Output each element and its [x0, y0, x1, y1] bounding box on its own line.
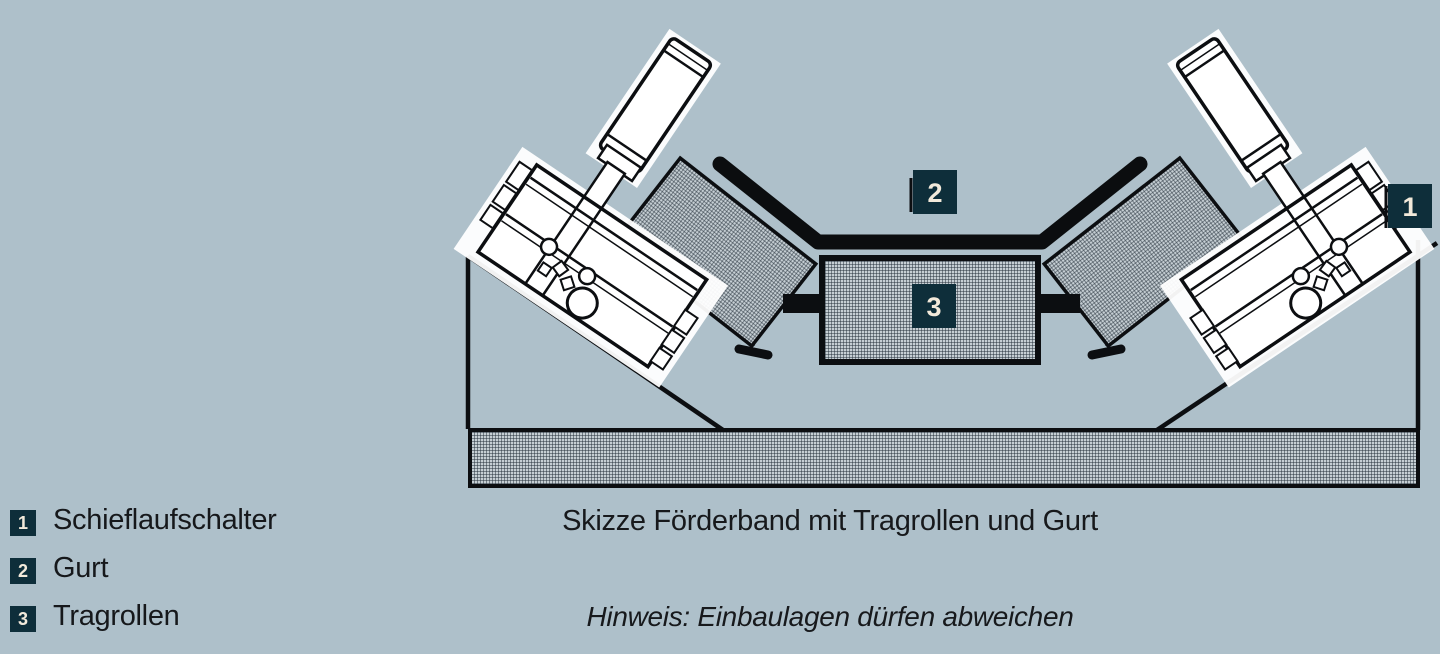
legend-badge-2: 2 [10, 558, 36, 584]
badge-idlers: 3 [912, 284, 956, 328]
badge-switch-number: 1 [1402, 192, 1417, 222]
legend-item-gurt: 2 Gurt [10, 557, 277, 584]
badge-belt-number: 2 [927, 178, 942, 208]
page: 2 3 1 1 Schieflaufschalter 2 Gurt 3 Trag… [0, 0, 1440, 654]
legend-badge-3: 3 [10, 606, 36, 632]
legend-label-1: Schieflaufschalter [53, 504, 277, 537]
axle-stub-right [1037, 294, 1080, 313]
axle-stub-left [783, 294, 825, 313]
legend-label-3: Tragrollen [53, 600, 179, 633]
legend-item-schieflaufschalter: 1 Schieflaufschalter [10, 509, 277, 536]
frame-base-bar [470, 430, 1418, 486]
legend-badge-1: 1 [10, 510, 36, 536]
badge-switch: 1 [1386, 184, 1432, 228]
badge-belt: 2 [911, 170, 957, 214]
legend: 1 Schieflaufschalter 2 Gurt 3 Tragrollen [10, 509, 277, 632]
legend-item-tragrollen: 3 Tragrollen [10, 605, 277, 632]
badge-idlers-number: 3 [926, 292, 941, 322]
legend-label-2: Gurt [53, 552, 108, 585]
misalignment-switch-left [454, 0, 829, 387]
